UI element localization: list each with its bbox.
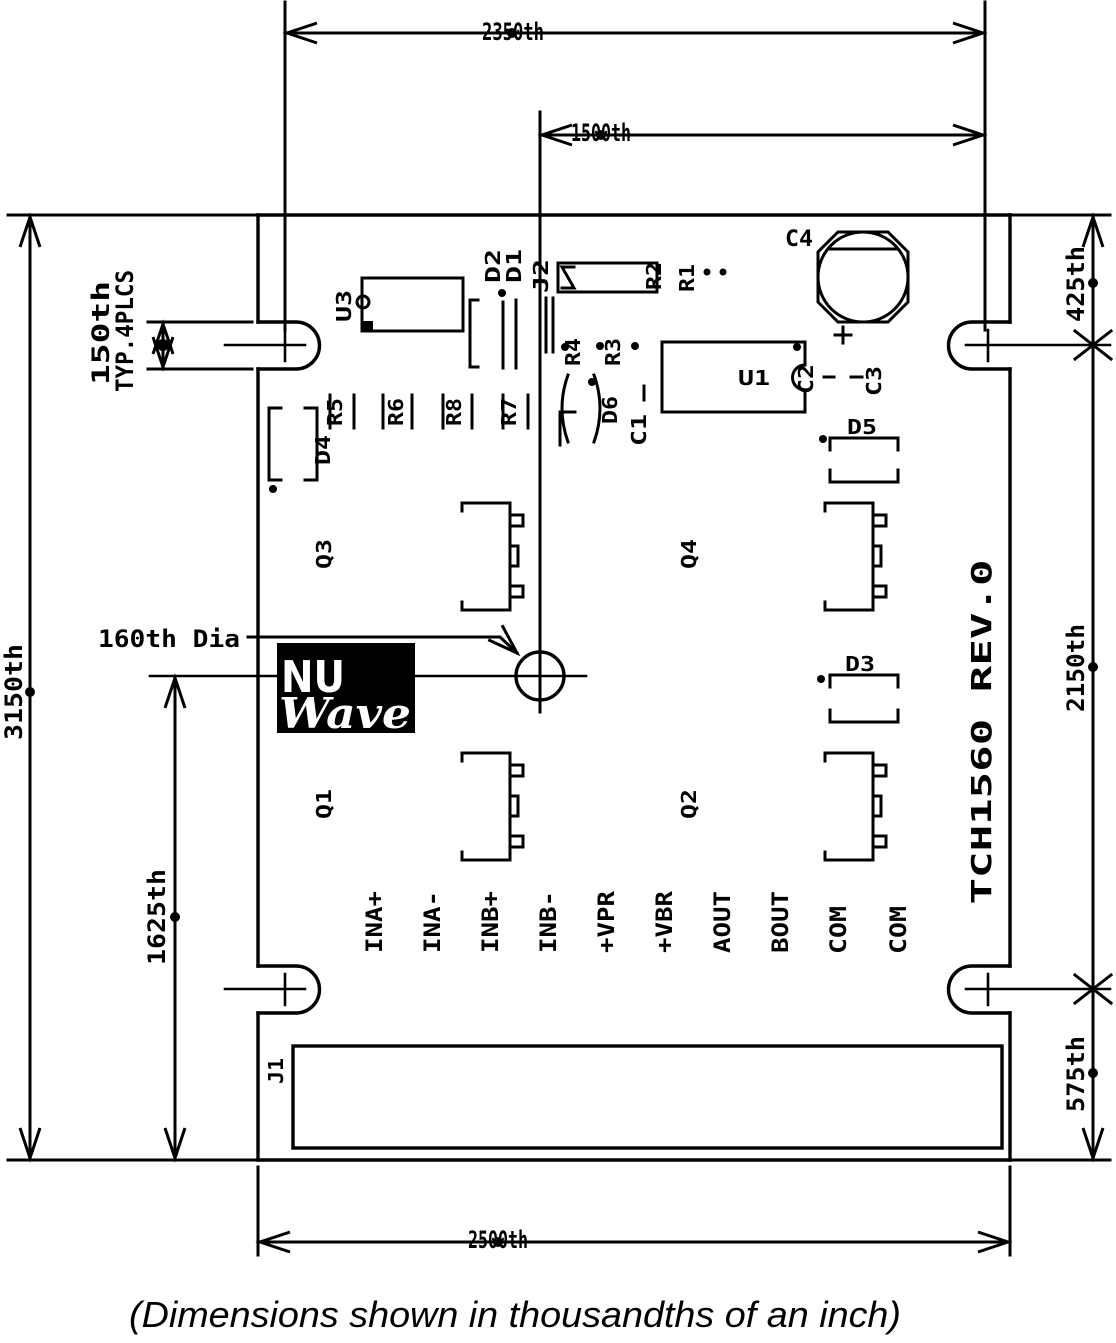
refdes-q1: Q1 [312,789,336,819]
pin-label-com-1: COM [827,906,852,954]
q2-tabs [873,765,886,847]
nuwave-logo: NU Wave [277,643,415,738]
pin-label-inb-minus: INB- [537,891,562,953]
d5-pad-dot [819,435,827,443]
refdes-c4: C4 [785,227,813,252]
dim-text-150-note: TYP.4PLCS [111,270,139,392]
u1-pin1-dot [793,343,801,351]
logo-text-wave: Wave [279,689,411,738]
d5-bracket-bottom [830,470,898,482]
pin-label-aout: AOUT [711,891,736,953]
q1-body [462,753,510,860]
board-id-text: TCH1560 REV.0 [965,560,998,905]
dimensions: 2350th 1500th 3150th 1625th 425th 2150th… [0,2,1111,1255]
component-c4: C4 [785,227,908,343]
r3-pad-dot-1 [596,342,604,350]
component-j2: J2 [529,259,657,352]
cap-bracket-left [562,375,568,442]
c4-plus-mark [835,327,851,343]
refdes-d3: D3 [845,652,875,676]
c4-body-circle [818,232,908,322]
d3-pad-dot [817,675,825,683]
drawing-canvas: 2350th 1500th 3150th 1625th 425th 2150th… [0,0,1116,1343]
d3-bracket-bottom [830,710,898,722]
q4-body [825,503,873,610]
r4-pad-dot [561,343,569,351]
component-d5: D5 [819,415,898,482]
component-q1: Q1 [312,753,523,860]
component-d6-c1: D6 C1 [560,386,651,446]
q3-tabs [510,515,523,597]
pin-label-vpr: +VPR [595,890,620,953]
component-q4: Q4 [677,503,886,610]
refdes-d5: D5 [847,415,877,439]
q1-tabs [510,765,523,847]
j2-pins [546,298,553,352]
refdes-r2: R2 [642,262,666,290]
dim-text-575: 575th [1062,1036,1090,1112]
dim-text-1500: 1500th [571,119,631,147]
refdes-q4: Q4 [677,539,701,569]
refdes-r7: R7 [497,398,521,426]
q3-body [462,503,510,610]
drawing-caption: (Dimensions shown in thousandths of an i… [129,1294,901,1335]
refdes-c1: C1 [627,414,651,446]
dim-text-2500: 2500th [468,1226,528,1254]
component-d2-d1: D2 D1 [481,249,526,368]
refdes-r3: R3 [601,338,625,366]
refdes-j2: J2 [529,259,553,293]
component-u3: U3 [332,278,478,367]
slot-left-top-centerline [225,330,305,361]
d2-d1-bodies [503,300,516,368]
r3-pad-dot-2 [631,342,639,350]
dim-text-425: 425th [1062,246,1090,322]
refdes-c3: C3 [862,366,886,396]
refdes-r6: R6 [384,398,408,426]
j1-body [293,1046,1002,1148]
pin-label-ina-minus: INA- [421,891,446,953]
hole-note-text: 160th Dia [98,625,240,653]
refdes-r5: R5 [323,398,347,426]
d3-bracket-top [830,675,898,687]
component-d3: D3 [817,652,898,722]
pcb-drawing: 2350th 1500th 3150th 1625th 425th 2150th… [0,0,1116,1343]
refdes-u3: U3 [332,290,356,322]
component-q3: Q3 [312,503,523,610]
refdes-d4: D4 [311,435,335,465]
pin-label-com-2: COM [887,906,912,954]
refdes-q2: Q2 [677,789,701,819]
slot-right-top-centerline [966,330,1110,361]
u3-pin1-square [363,321,373,330]
u1-body [662,342,805,412]
component-j1: J1 [264,1046,1002,1148]
d4-pad-dot [269,485,277,493]
d2-pad-dot [498,289,506,297]
dim-text-3150: 3150th [0,644,28,740]
pin-label-inb-plus: INB+ [479,891,504,953]
refdes-q3: Q3 [312,539,336,569]
component-r2-r1: R2 R1 [642,262,727,292]
u3-bracket [470,300,478,367]
u3-body [362,278,463,331]
dim-text-2350: 2350th [482,18,544,46]
dim-text-1625: 1625th [143,869,171,965]
refdes-r8: R8 [442,398,466,426]
refdes-r4: R4 [561,338,585,366]
pin-label-ina-plus: INA+ [363,891,388,953]
r1-pad-dot-2 [720,269,727,276]
refdes-r1: R1 [675,264,699,292]
component-q2: Q2 [677,753,886,860]
d4-bracket-left [269,408,281,480]
refdes-d1: D1 [502,249,526,283]
dim-dot-1625 [170,912,180,922]
d5-bracket-top [830,438,898,450]
components: C4 U3 D2 D1 J2 [264,227,1002,1148]
refdes-c2: C2 [794,364,818,394]
component-resistor-row: R5 R6 R8 R7 [323,395,528,428]
slot-left-bottom-centerline [225,974,305,1005]
dim-text-2150: 2150th [1062,624,1090,712]
dim-dot-150 [157,339,169,351]
q4-tabs [873,515,886,597]
pin-label-bout: BOUT [769,891,794,953]
pin-label-vbr: +VBR [653,890,678,953]
q2-body [825,753,873,860]
component-c2-c3: C2 C3 [794,364,886,396]
pin-labels: INA+ INA- INB+ INB- +VPR +VBR AOUT BOUT … [363,890,912,954]
r1-pad-dot-1 [704,269,711,276]
refdes-u1: U1 [738,366,770,390]
refdes-j1: J1 [264,1058,288,1084]
component-u1: U1 [662,342,805,412]
j2-key-mark [562,267,574,288]
refdes-d6: D6 [598,396,622,424]
slot-right-bottom-centerline [966,974,1110,1005]
